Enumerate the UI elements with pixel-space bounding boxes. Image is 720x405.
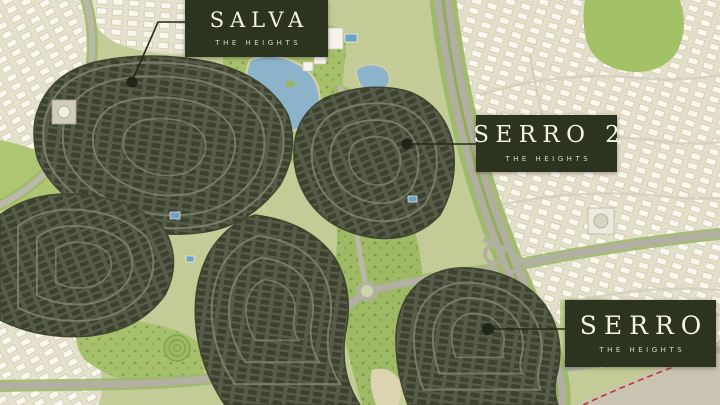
salva-label[interactable]: SALVA THE HEIGHTS bbox=[185, 0, 328, 57]
salva-label-title: SALVA bbox=[204, 10, 309, 31]
mosque-dome-building bbox=[588, 208, 614, 234]
dome-building-top-left bbox=[52, 100, 76, 124]
tennis-court bbox=[186, 256, 194, 262]
circular-park bbox=[164, 335, 190, 361]
salva-marker-dot[interactable] bbox=[127, 77, 138, 88]
tennis-court bbox=[345, 34, 357, 42]
serro2-label[interactable]: SERRO 2 THE HEIGHTS bbox=[476, 115, 617, 172]
serro-marker-dot[interactable] bbox=[482, 323, 494, 335]
clubhouse-building bbox=[328, 28, 343, 49]
clubhouse-building bbox=[303, 62, 313, 71]
tennis-court bbox=[408, 196, 417, 202]
serro-label-subtitle: THE HEIGHTS bbox=[596, 346, 685, 354]
salva-label-subtitle: THE HEIGHTS bbox=[212, 39, 301, 47]
serro-label-title: SERRO bbox=[573, 313, 709, 338]
lake-island bbox=[285, 81, 295, 88]
serro2-label-title: SERRO 2 bbox=[467, 124, 627, 147]
masterplan-map: SALVA THE HEIGHTS SERRO 2 THE HEIGHTS SE… bbox=[0, 0, 720, 405]
tennis-court bbox=[170, 212, 180, 219]
roundabout bbox=[359, 283, 375, 299]
serro2-label-subtitle: THE HEIGHTS bbox=[502, 155, 591, 163]
serro-label[interactable]: SERRO THE HEIGHTS bbox=[565, 300, 716, 367]
serro2-marker-dot[interactable] bbox=[402, 139, 413, 150]
